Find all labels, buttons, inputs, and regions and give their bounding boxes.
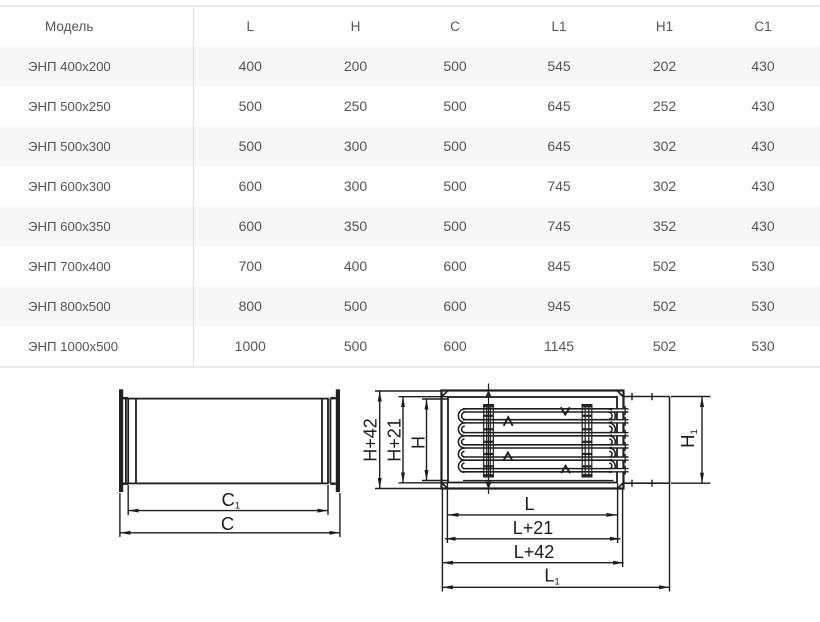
svg-text:C: C — [221, 513, 234, 534]
svg-text:L+42: L+42 — [514, 542, 555, 562]
svg-text:L1: L1 — [544, 566, 559, 588]
svg-text:C1: C1 — [222, 489, 241, 512]
svg-text:H+21: H+21 — [384, 418, 404, 462]
svg-text:L: L — [524, 494, 534, 514]
svg-text:H1: H1 — [677, 429, 700, 448]
svg-text:H+42: H+42 — [360, 418, 380, 462]
svg-text:L+21: L+21 — [513, 518, 554, 538]
svg-text:H: H — [408, 436, 428, 449]
